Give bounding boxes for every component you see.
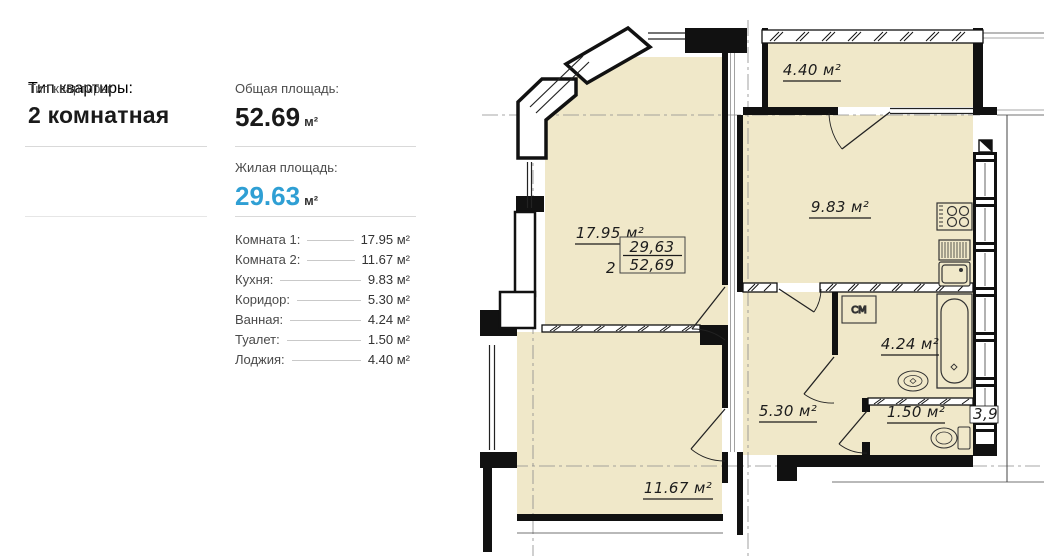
summary-total-area: 52,69 [630, 256, 675, 274]
room-label: Комната 1: [235, 232, 300, 247]
wall-block-bottomleft [480, 452, 517, 468]
total-area-unit: м² [304, 114, 318, 129]
label-room-second: 11.67 м² [644, 479, 712, 497]
room-value: 11.67 м² [362, 252, 410, 267]
edge-dimension-text: 3,9 [973, 405, 998, 423]
left-wall-outlined [515, 212, 535, 296]
vent-symbol-icon [979, 140, 992, 152]
hatch-loggia-top [762, 30, 983, 43]
leader-line [297, 300, 361, 301]
room-value: 1.50 м² [368, 332, 410, 347]
leader-line [307, 240, 353, 241]
room-value: 4.24 м² [368, 312, 410, 327]
wall-room2-right-upper [722, 332, 728, 408]
wall-wc-bottom [832, 455, 973, 467]
wall-tail-bottomleft [483, 468, 492, 552]
washing-machine-label: СМ [851, 305, 867, 316]
wall-bathroom-left [832, 292, 838, 355]
list-item: Ванная:4.24 м² [235, 309, 410, 329]
leader-line [307, 260, 354, 261]
kitchen-sink-icon [939, 240, 970, 286]
wall-kitchen-topright [973, 107, 997, 115]
floor-plan: 3,9 [480, 0, 1044, 560]
label-loggia: 4.40 м² [783, 61, 841, 79]
bathtub-icon [937, 294, 972, 388]
list-item: Коридор:5.30 м² [235, 289, 410, 309]
room-label: Лоджия: [235, 352, 285, 367]
washing-machine-icon: СМ [842, 296, 876, 323]
living-area-value: 29.63м² [235, 181, 318, 212]
separator-total [235, 146, 416, 147]
living-area-number: 29.63 [235, 181, 300, 211]
separator-left-column-2 [25, 216, 207, 217]
leader-line [287, 340, 361, 341]
apartment-listing-page: Тип квартиры: Тип квартиры: 2 комнатная … [0, 0, 1044, 560]
wall-entry-step [777, 455, 832, 467]
room-label: Ванная: [235, 312, 283, 327]
room-value: 4.40 м² [368, 352, 410, 367]
total-area-value: 52.69м² [235, 102, 318, 133]
wall-shaft-bottom [973, 444, 997, 456]
stove-icon [937, 203, 972, 230]
label-wc: 1.50 м² [887, 403, 945, 421]
list-item: Комната 2:11.67 м² [235, 249, 410, 269]
wall-top-main [685, 28, 747, 53]
wall-hall-left-lower [737, 452, 743, 535]
room-label: Коридор: [235, 292, 290, 307]
room-label: Комната 2: [235, 252, 300, 267]
list-item: Туалет:1.50 м² [235, 329, 410, 349]
leader-line [292, 360, 361, 361]
separator-living [235, 216, 416, 217]
wall-room2-right-lower [722, 452, 728, 483]
list-item: Комната 1:17.95 м² [235, 229, 410, 249]
wall-room2-bottom [517, 514, 723, 521]
leader-line [290, 320, 361, 321]
vent-shaft: 3,9 [970, 140, 998, 444]
apartment-type-value: 2 комнатная [28, 102, 169, 129]
left-wall-step [500, 292, 535, 328]
separator-left-column [25, 146, 207, 147]
room-value: 17.95 м² [361, 232, 410, 247]
edge-dimension: 3,9 [970, 405, 998, 423]
total-area-number: 52.69 [235, 102, 300, 132]
type-label: Тип квартиры: [28, 81, 113, 96]
room-label: Туалет: [235, 332, 280, 347]
room-label: Кухня: [235, 272, 273, 287]
wall-kitchen-top [743, 107, 838, 115]
leader-line [280, 280, 360, 281]
hatch-room-divider [542, 325, 700, 332]
living-area-label: Жилая площадь: [235, 160, 338, 175]
list-item: Лоджия:4.40 м² [235, 349, 410, 369]
apartment-number: 2 [606, 259, 616, 277]
room-value: 9.83 м² [368, 272, 410, 287]
list-item: Кухня:9.83 м² [235, 269, 410, 289]
summary-living-area: 29,63 [630, 238, 675, 256]
total-area-label: Общая площадь: [235, 81, 339, 96]
room-list: Комната 1:17.95 м² Комната 2:11.67 м² Ку… [235, 229, 410, 369]
label-hallway: 5.30 м² [759, 402, 817, 420]
wall-main-right [722, 28, 728, 285]
wall-entry-step-2 [777, 467, 797, 481]
window-kitchen-top [890, 109, 973, 114]
room-value: 5.30 м² [368, 292, 410, 307]
label-kitchen: 9.83 м² [811, 198, 869, 216]
wall-kitchen-left [737, 115, 743, 292]
label-bathroom: 4.24 м² [881, 335, 939, 353]
living-area-unit: м² [304, 193, 318, 208]
wall-window-block-left [516, 196, 544, 212]
window-left-room2 [490, 345, 495, 450]
window-top-main [648, 33, 685, 39]
